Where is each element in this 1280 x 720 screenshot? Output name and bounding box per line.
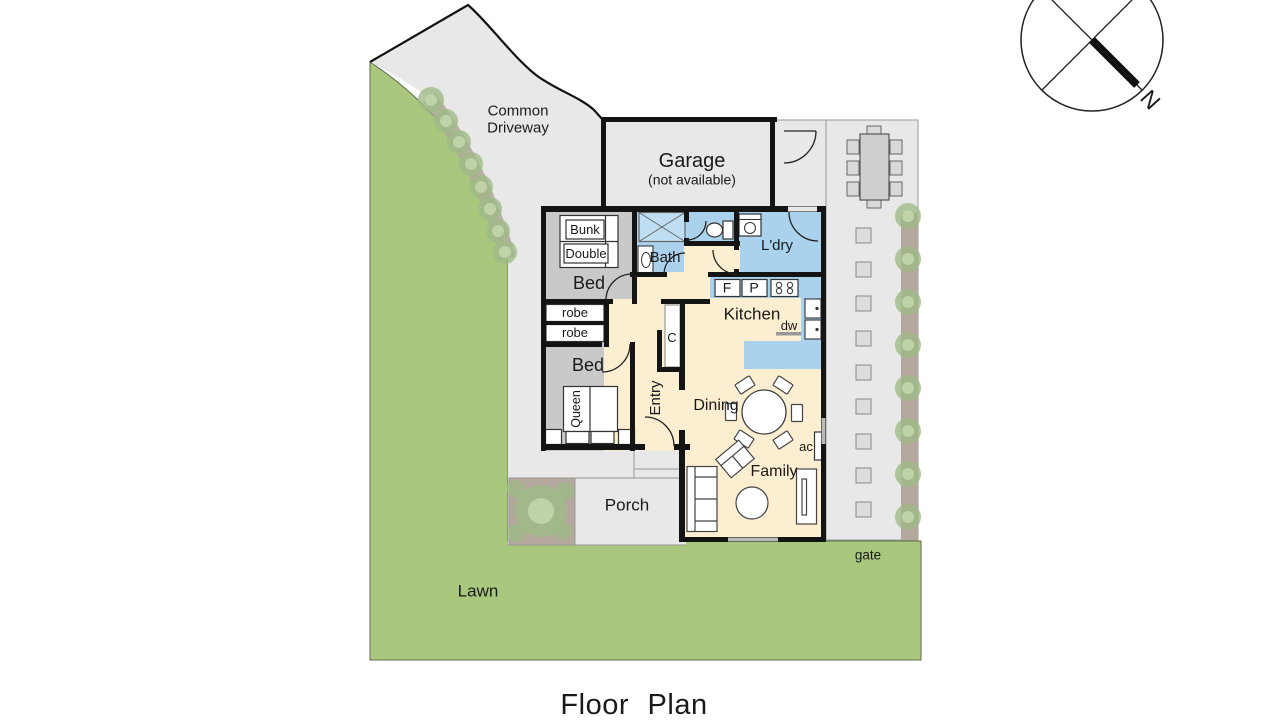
double-bed-label: Double	[565, 247, 606, 261]
laundry-label: L'dry	[761, 238, 793, 255]
compass-icon	[1021, 0, 1163, 111]
common-driveway-label: Common Driveway	[487, 104, 549, 137]
garage-label: Garage	[659, 150, 726, 172]
pantry-label: P	[749, 280, 758, 295]
gate-label: gate	[855, 549, 881, 564]
fridge-label: F	[723, 280, 732, 295]
laundry-external-door-gap	[788, 207, 817, 212]
bedroom-front-label: Bed	[573, 274, 605, 294]
bathroom-label: Bath	[650, 250, 681, 267]
robe-front-label: robe	[562, 306, 588, 320]
sofa	[687, 467, 717, 532]
porch-label: Porch	[605, 497, 649, 516]
cooktop	[771, 280, 798, 297]
ac-label: ac	[799, 440, 813, 454]
garage-note: (not available)	[648, 172, 736, 187]
stepping-stones	[856, 228, 871, 517]
family-label: Family	[750, 463, 797, 481]
lawn-label: Lawn	[458, 583, 499, 602]
common-driveway-line2: Driveway	[487, 120, 549, 137]
dining-label: Dining	[693, 397, 738, 415]
coffee-table	[736, 487, 768, 519]
wc-hall-floor	[684, 241, 740, 277]
entry-label: Entry	[648, 380, 665, 415]
closet-label: C	[667, 331, 676, 345]
family-sliding-door	[728, 538, 778, 542]
floor-plan-canvas: Common Driveway Garage (not available) B…	[0, 0, 1280, 720]
floor-plan-graphic	[0, 0, 1280, 720]
bunk-bed-label: Bunk	[570, 223, 600, 237]
robe-rear-label: robe	[562, 326, 588, 340]
side-sliding-door	[822, 418, 826, 444]
common-driveway-line1: Common	[487, 104, 549, 121]
page-title: Floor Plan	[560, 690, 707, 720]
dishwasher-label: dw	[781, 319, 798, 333]
bedroom-rear-label: Bed	[572, 356, 604, 376]
kitchen-label: Kitchen	[724, 306, 781, 325]
washing-machine	[739, 214, 761, 236]
porch-tree	[507, 480, 574, 542]
kitchen-island	[744, 341, 826, 369]
shower	[639, 213, 685, 242]
tv-unit	[797, 469, 817, 524]
queen-bed-label: Queen	[570, 390, 584, 428]
